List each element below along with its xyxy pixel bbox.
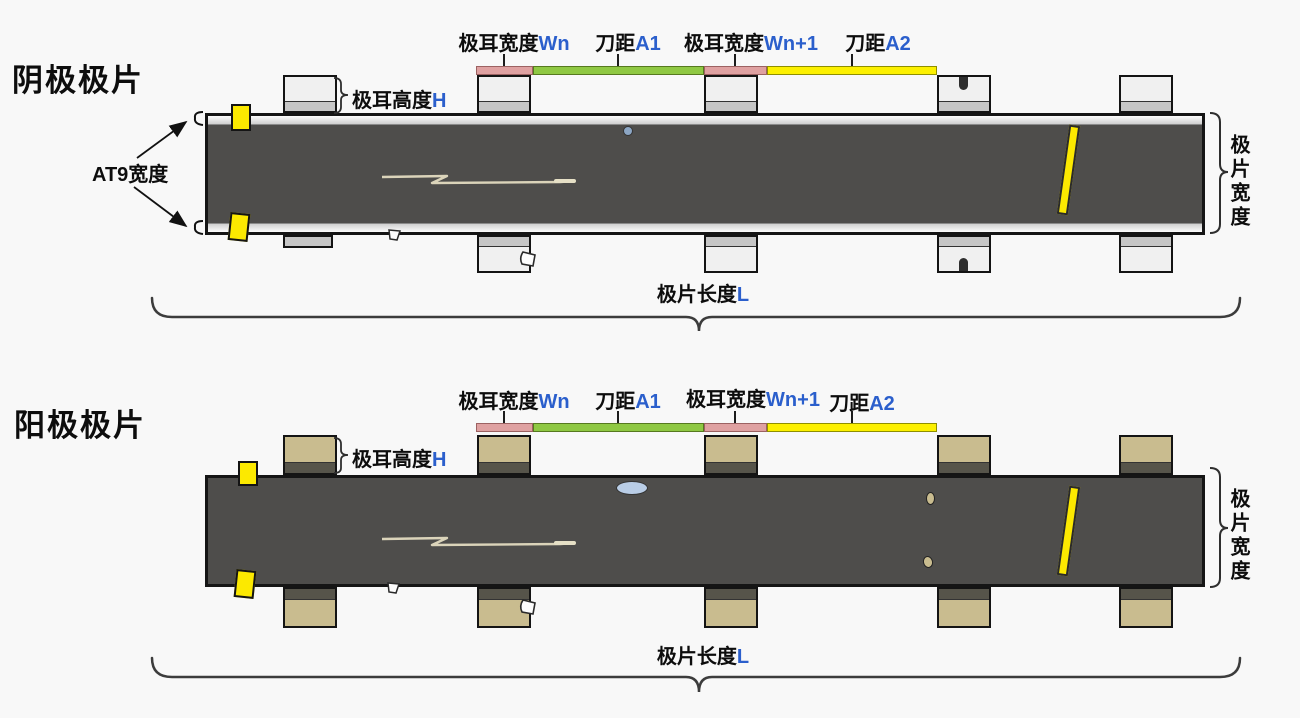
defect-notch-icon [959,77,968,90]
anode-bottom-tab [704,587,758,628]
bar-tab-width-wn [476,66,533,75]
bar-knife-a2 [767,66,937,75]
anode-bottom-tab [1119,587,1173,628]
label-tab-height: 极耳高度H [352,84,446,113]
at9-arrow-top [137,122,186,158]
anode-top-tab [477,435,531,475]
cathode-bottom-tab-sliver [283,235,333,248]
label-sheet-length: 极片长度L [657,640,749,669]
label-text: 刀距 [595,391,635,413]
tab-band [939,462,989,473]
tab-band [1121,589,1171,600]
tab-band [1121,237,1171,247]
label-sheet-width: 极片宽度 [1228,488,1248,584]
tab-band [1121,462,1171,473]
label-text: 刀距 [829,393,869,415]
foil-edge-band [208,223,1202,232]
label-tab-width-wn: 极耳宽度Wn [458,385,569,414]
cathode-bottom-tab [477,235,531,273]
tab-band [706,237,756,247]
label-tab-width-wn: 极耳宽度Wn [458,27,569,56]
label-var: A1 [635,33,661,55]
anode-bottom-tab [283,587,337,628]
label-var: A2 [869,393,895,415]
defect-dot-icon [623,126,633,136]
tab-band [1121,101,1171,111]
label-knife-a1: 刀距A1 [595,385,661,414]
label-knife-a2: 刀距A2 [829,387,895,416]
edge-curl-icon [195,112,203,125]
anode-bottom-tab [477,587,531,628]
electrode-sheet-diagram: 阴极极片 极耳宽度Wn 刀距A1 极耳宽度Wn+1 刀距A2 极耳高度H [0,0,1300,718]
bar-tab-width-wn1 [704,66,767,75]
yellow-edge-marker [234,569,257,599]
tab-band [706,101,756,111]
label-at9-width: AT9宽度 [92,158,168,187]
label-text: 极耳高度 [352,90,432,112]
tab-band [939,101,989,111]
label-var: Wn [538,33,569,55]
label-var: Wn+1 [766,389,820,411]
label-text: 极耳高度 [352,449,432,471]
cathode-bottom-tab [1119,235,1173,273]
defect-dot-icon [926,492,935,505]
tab-band [706,462,756,473]
tab-band [479,101,529,111]
label-tab-height: 极耳高度H [352,443,446,472]
bar-knife-a2 [767,423,937,432]
anode-top-tab [1119,435,1173,475]
anode-top-tab [937,435,991,475]
label-var: Wn+1 [764,33,818,55]
label-text: 刀距 [595,33,635,55]
anode-bottom-tab [937,587,991,628]
cathode-top-tab [704,75,758,113]
tab-band [479,237,529,247]
cathode-top-tab [1119,75,1173,113]
anode-title: 阳极极片 [14,400,146,445]
label-tab-width-wn1: 极耳宽度Wn+1 [684,27,818,56]
anode-top-tab [283,435,337,475]
defect-ellipse-icon [616,481,648,495]
anode-top-tab [704,435,758,475]
bar-tab-width-wn1 [704,423,767,432]
annotation-layer [0,0,1300,718]
label-sheet-length: 极片长度L [657,278,749,307]
yellow-edge-marker [231,104,251,131]
cathode-top-tab [477,75,531,113]
label-var: L [737,284,749,306]
edge-curl-icon [195,221,203,234]
cathode-bottom-tab [704,235,758,273]
label-knife-a2: 刀距A2 [845,27,911,56]
label-text: 极耳宽度 [684,33,764,55]
tab-band [285,462,335,473]
tab-band [479,589,529,600]
label-text: 极耳宽度 [458,391,538,413]
tab-band [479,462,529,473]
bar-tab-width-wn [476,423,533,432]
label-var: A1 [635,391,661,413]
tab-band [706,589,756,600]
bar-knife-a1 [533,66,704,75]
label-text: 极片长度 [657,646,737,668]
anode-strip [205,475,1205,587]
sheet-width-bracket [1210,113,1228,233]
foil-edge-band [208,116,1202,125]
label-var: Wn [538,391,569,413]
tab-band [939,589,989,600]
at9-arrow-bottom [134,187,186,226]
label-var: H [432,449,446,471]
cathode-top-tab [283,75,337,113]
cathode-title: 阴极极片 [12,55,144,100]
label-text: 刀距 [845,33,885,55]
bar-knife-a1 [533,423,704,432]
label-tab-width-wn1: 极耳宽度Wn+1 [686,383,820,412]
label-text: 极耳宽度 [686,389,766,411]
defect-notch-icon [959,258,968,271]
label-text: 极耳宽度 [458,33,538,55]
label-var: H [432,90,446,112]
cathode-strip [205,113,1205,235]
yellow-edge-marker [238,461,258,486]
sheet-width-bracket [1210,468,1228,587]
yellow-edge-marker [228,212,251,242]
label-text: 极片长度 [657,284,737,306]
tab-band [939,237,989,247]
tab-band [285,589,335,600]
label-var: A2 [885,33,911,55]
label-var: L [737,646,749,668]
label-knife-a1: 刀距A1 [595,27,661,56]
label-sheet-width: 极片宽度 [1228,134,1248,230]
tab-band [285,101,335,111]
